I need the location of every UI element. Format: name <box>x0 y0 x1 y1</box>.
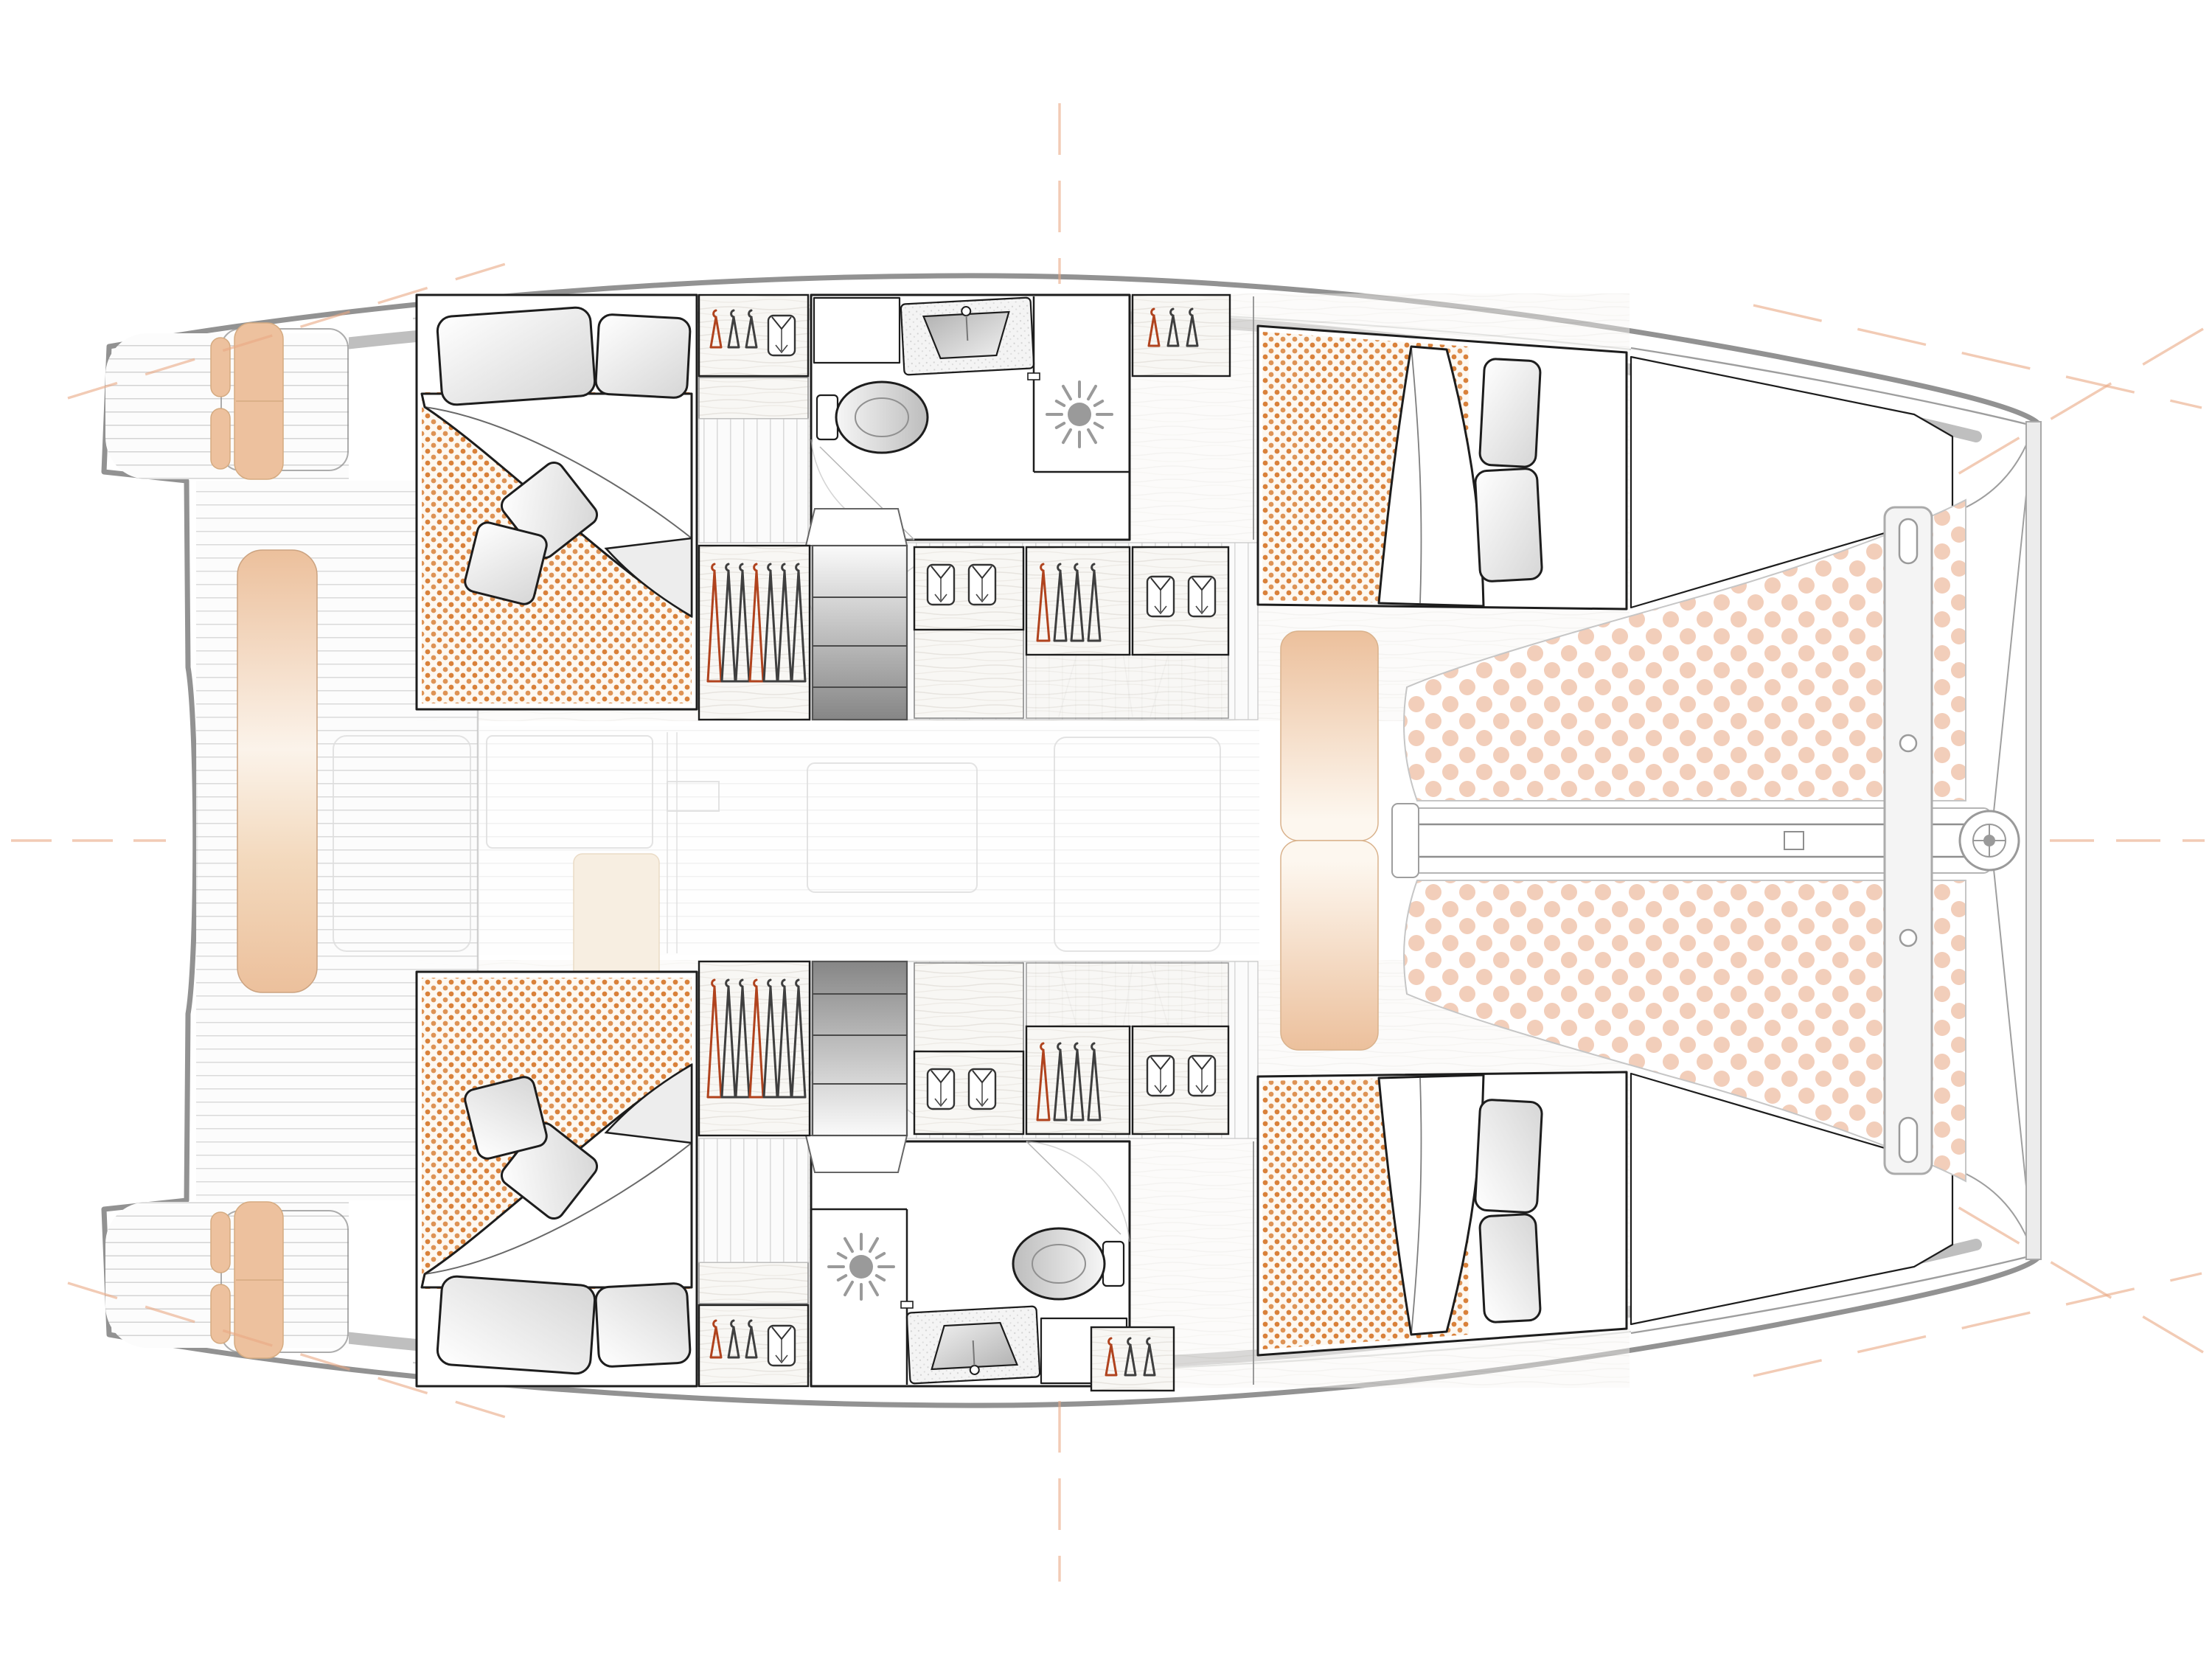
wardrobe-stbd-aft <box>699 1305 808 1386</box>
wardrobe-stbd-fwd <box>1091 1327 1174 1391</box>
folded-shirt-icon <box>1189 1056 1215 1096</box>
wardrobe-stbd-hanging-2 <box>1026 1026 1130 1134</box>
swim-platform-starboard <box>105 1202 349 1358</box>
wardrobe-port-fwd <box>1133 295 1230 376</box>
helm-bench-cushion <box>237 550 317 992</box>
stbd-aft-cabin <box>417 972 697 1386</box>
catamaran-plan <box>0 0 2212 1659</box>
wardrobe-port-hanging-2 <box>1026 547 1130 655</box>
foredeck-seat-starboard <box>1281 841 1378 1050</box>
port-steps <box>806 509 907 720</box>
bow-connector-beam <box>2026 422 2041 1259</box>
stbd-head <box>811 1141 1130 1386</box>
folded-shirt-icon <box>969 565 995 605</box>
swim-platform-port <box>105 323 349 479</box>
folded-shirt-icon <box>768 1326 795 1366</box>
foredeck-seat-port <box>1281 631 1378 841</box>
wardrobe-port-aft <box>699 295 808 376</box>
folded-shirt-icon <box>1189 577 1215 616</box>
folded-shirt-icon <box>1147 1056 1174 1096</box>
port-aft-cabin <box>417 295 697 709</box>
furler-drum <box>1960 811 2019 870</box>
folded-shirt-icon <box>928 565 954 605</box>
folded-shirt-icon <box>928 1069 954 1109</box>
port-head <box>811 295 1130 540</box>
wardrobe-port-hanging <box>699 546 810 720</box>
wardrobe-port-shirts <box>914 547 1023 630</box>
folded-shirt-icon <box>1147 577 1174 616</box>
floor-plan-canvas <box>0 0 2212 1659</box>
folded-shirt-icon <box>768 316 795 355</box>
folded-shirt-icon <box>969 1069 995 1109</box>
stbd-steps <box>806 961 907 1172</box>
wardrobe-stbd-shirts <box>914 1051 1023 1134</box>
wardrobe-stbd-shirts-2 <box>1133 1026 1228 1134</box>
port-fwd-cabin <box>1258 326 1627 609</box>
forward-crossbeam <box>1885 507 1932 1174</box>
stbd-fwd-cabin <box>1258 1072 1627 1355</box>
wardrobe-stbd-hanging <box>699 961 810 1135</box>
wardrobe-port-shirts-2 <box>1133 547 1228 655</box>
